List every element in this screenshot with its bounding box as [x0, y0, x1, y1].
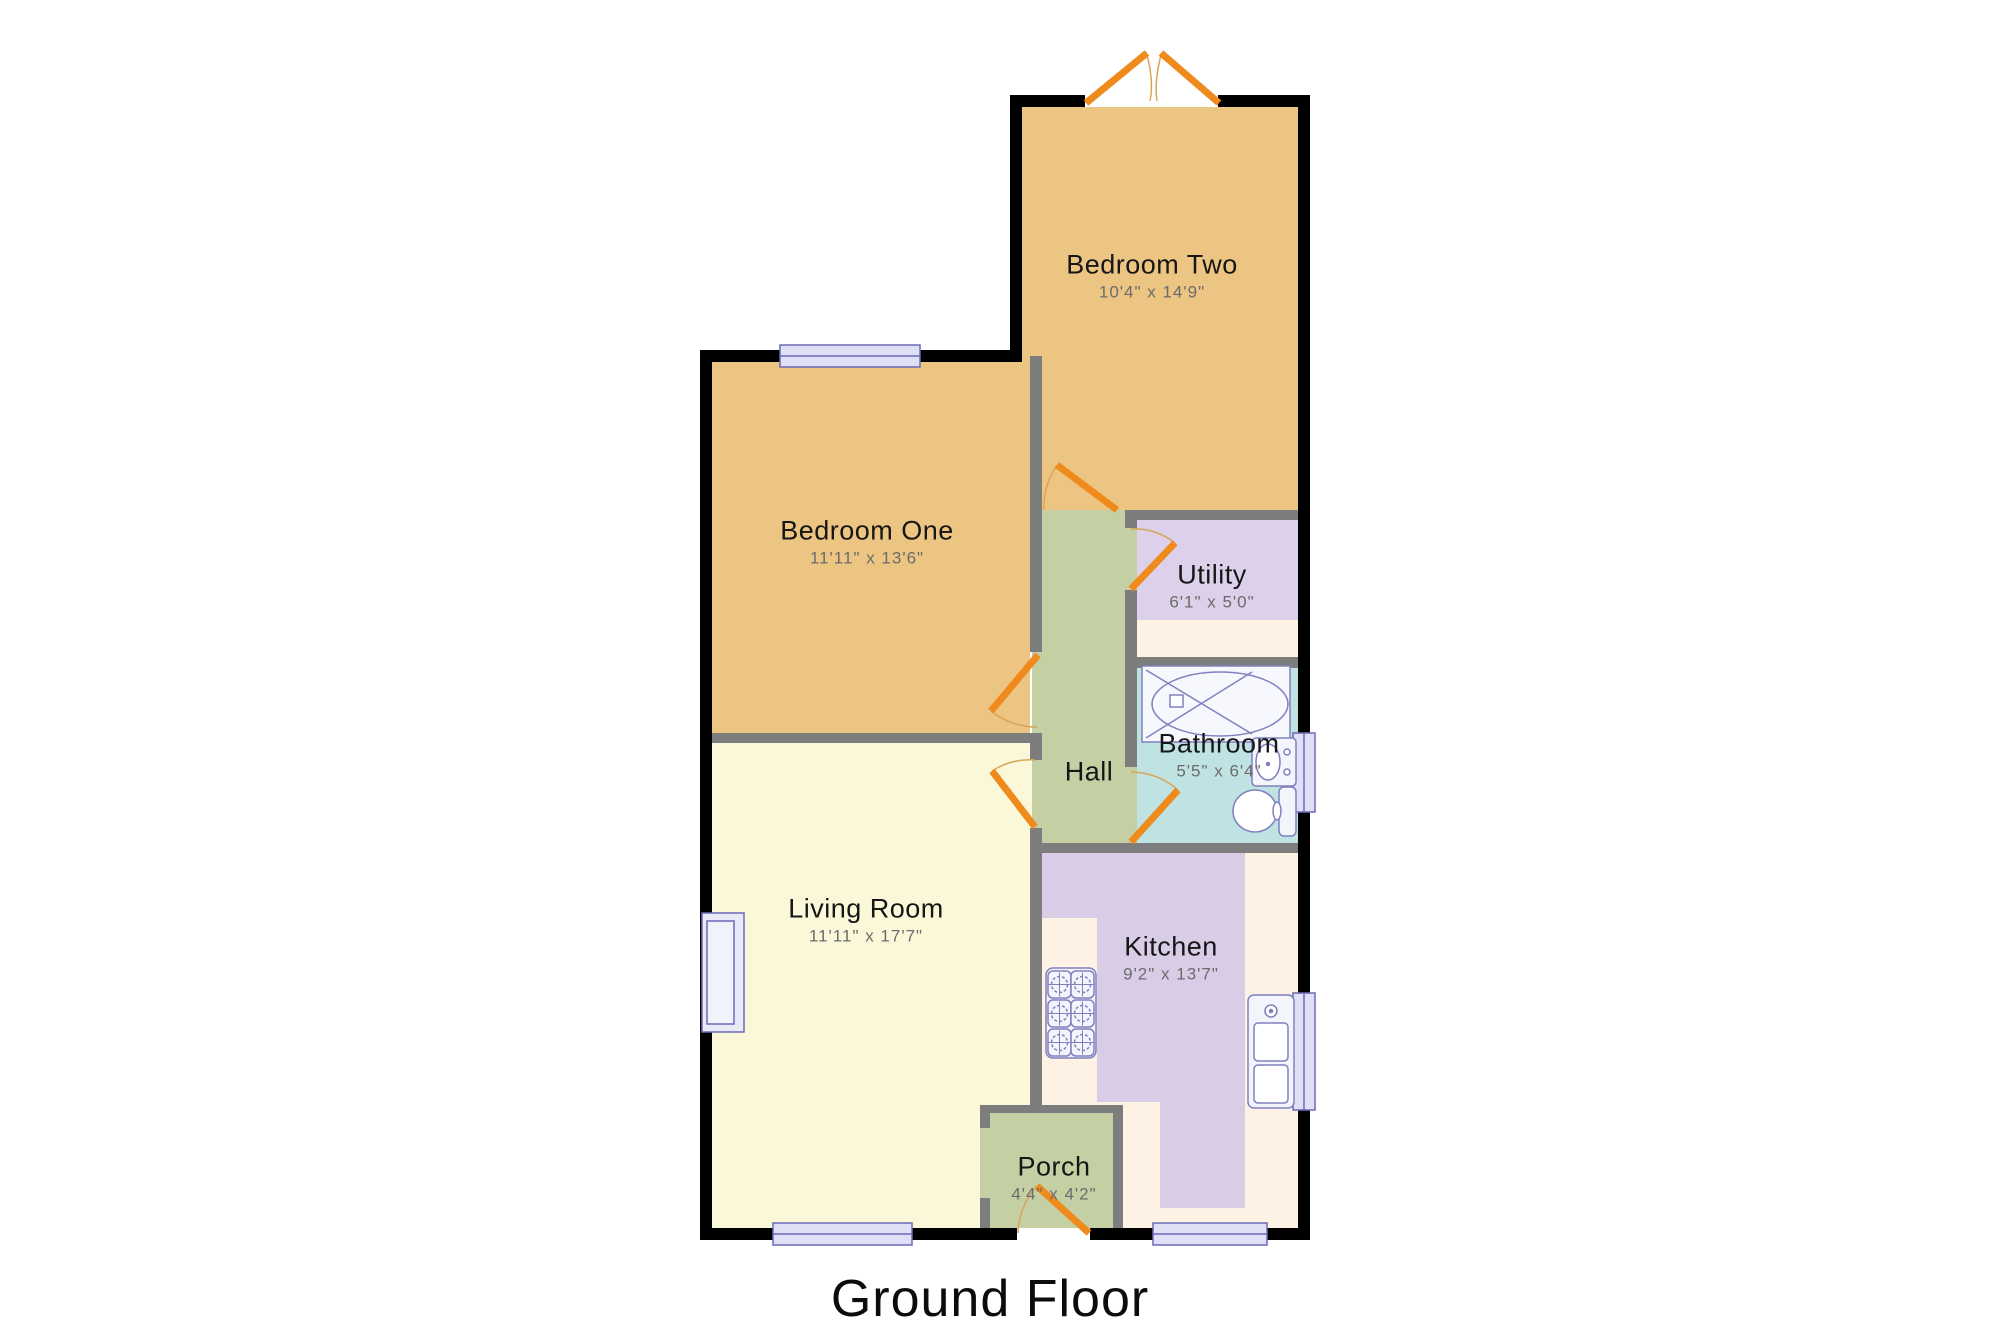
hall-floor — [1032, 510, 1137, 853]
bathtub-icon — [1142, 666, 1290, 742]
kitchen-window — [1153, 1223, 1267, 1245]
hob-icon — [1046, 968, 1096, 1058]
bathroom-sink-icon — [1252, 738, 1296, 786]
bedroom-one-window — [780, 345, 920, 367]
bedroom-one-floor — [712, 362, 1030, 733]
bedroom-two-floor — [1022, 107, 1298, 510]
floor-plan: Bedroom Two 10'4" x 14'9" Bedroom One 11… — [0, 0, 2000, 1333]
utility-lobby-floor — [1137, 620, 1298, 657]
floor-plan-drawing — [0, 0, 2000, 1333]
living-room-bay-window — [702, 913, 744, 1032]
toilet-icon — [1233, 787, 1296, 836]
floor-title: Ground Floor — [831, 1269, 1149, 1329]
porch-floor — [980, 1113, 1113, 1228]
living-room-window — [773, 1223, 912, 1245]
kitchen-sink-icon — [1248, 995, 1294, 1108]
bedroom-two-french-doors — [1086, 53, 1219, 103]
kitchen-side-window — [1293, 993, 1315, 1110]
